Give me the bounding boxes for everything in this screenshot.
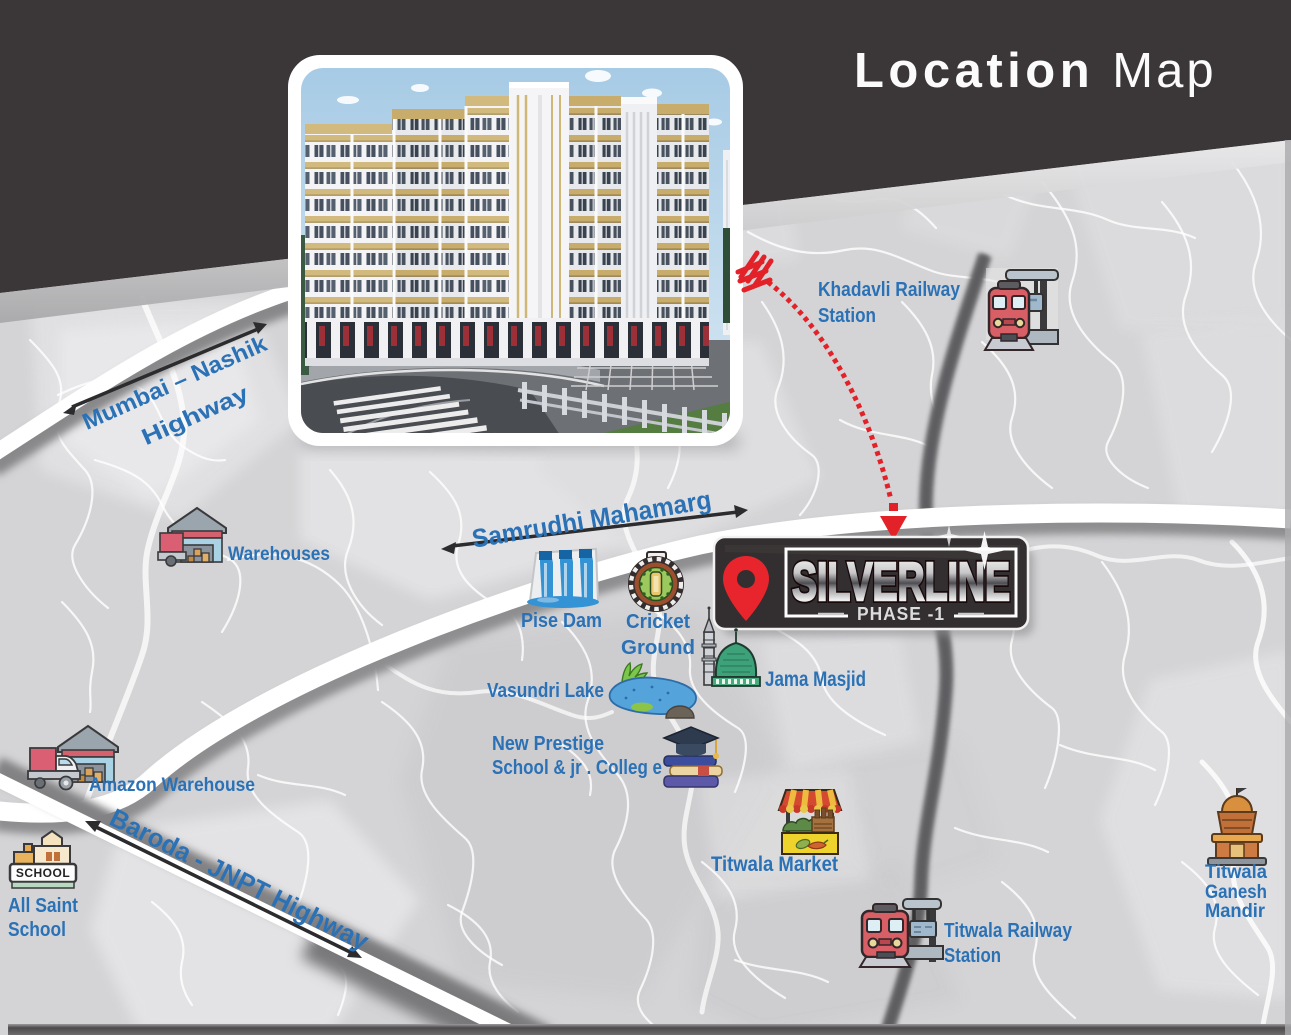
svg-text:Titwala: Titwala xyxy=(1205,862,1267,883)
svg-text:Station: Station xyxy=(944,945,1001,967)
svg-text:Location Map: Location Map xyxy=(854,44,1217,98)
svg-text:Cricket: Cricket xyxy=(626,611,690,633)
svg-text:Warehouses: Warehouses xyxy=(228,544,330,565)
svg-text:New Prestige: New Prestige xyxy=(492,733,604,755)
svg-text:Titwala Railway: Titwala Railway xyxy=(944,920,1073,942)
svg-text:SCHOOL: SCHOOL xyxy=(16,866,70,880)
svg-text:SILVERLINE: SILVERLINE xyxy=(792,552,1010,612)
svg-text:Pise Dam: Pise Dam xyxy=(521,610,602,632)
svg-text:Station: Station xyxy=(818,305,876,327)
svg-text:All Saint: All Saint xyxy=(8,895,78,917)
svg-text:Amazon Warehouse: Amazon Warehouse xyxy=(89,775,255,796)
svg-text:School: School xyxy=(8,919,66,941)
svg-text:Vasundri Lake: Vasundri Lake xyxy=(487,680,604,702)
svg-text:Khadavli Railway: Khadavli Railway xyxy=(818,279,961,301)
svg-text:Mandir: Mandir xyxy=(1205,901,1266,922)
svg-text:Ground: Ground xyxy=(621,637,695,659)
svg-text:PHASE -1: PHASE -1 xyxy=(857,604,945,624)
svg-text:Jama Masjid: Jama Masjid xyxy=(765,668,866,691)
svg-text:Ganesh: Ganesh xyxy=(1205,882,1267,903)
svg-text:Titwala Market: Titwala Market xyxy=(711,853,838,876)
svg-text:School & jr . Colleg e: School & jr . Colleg e xyxy=(492,757,662,779)
